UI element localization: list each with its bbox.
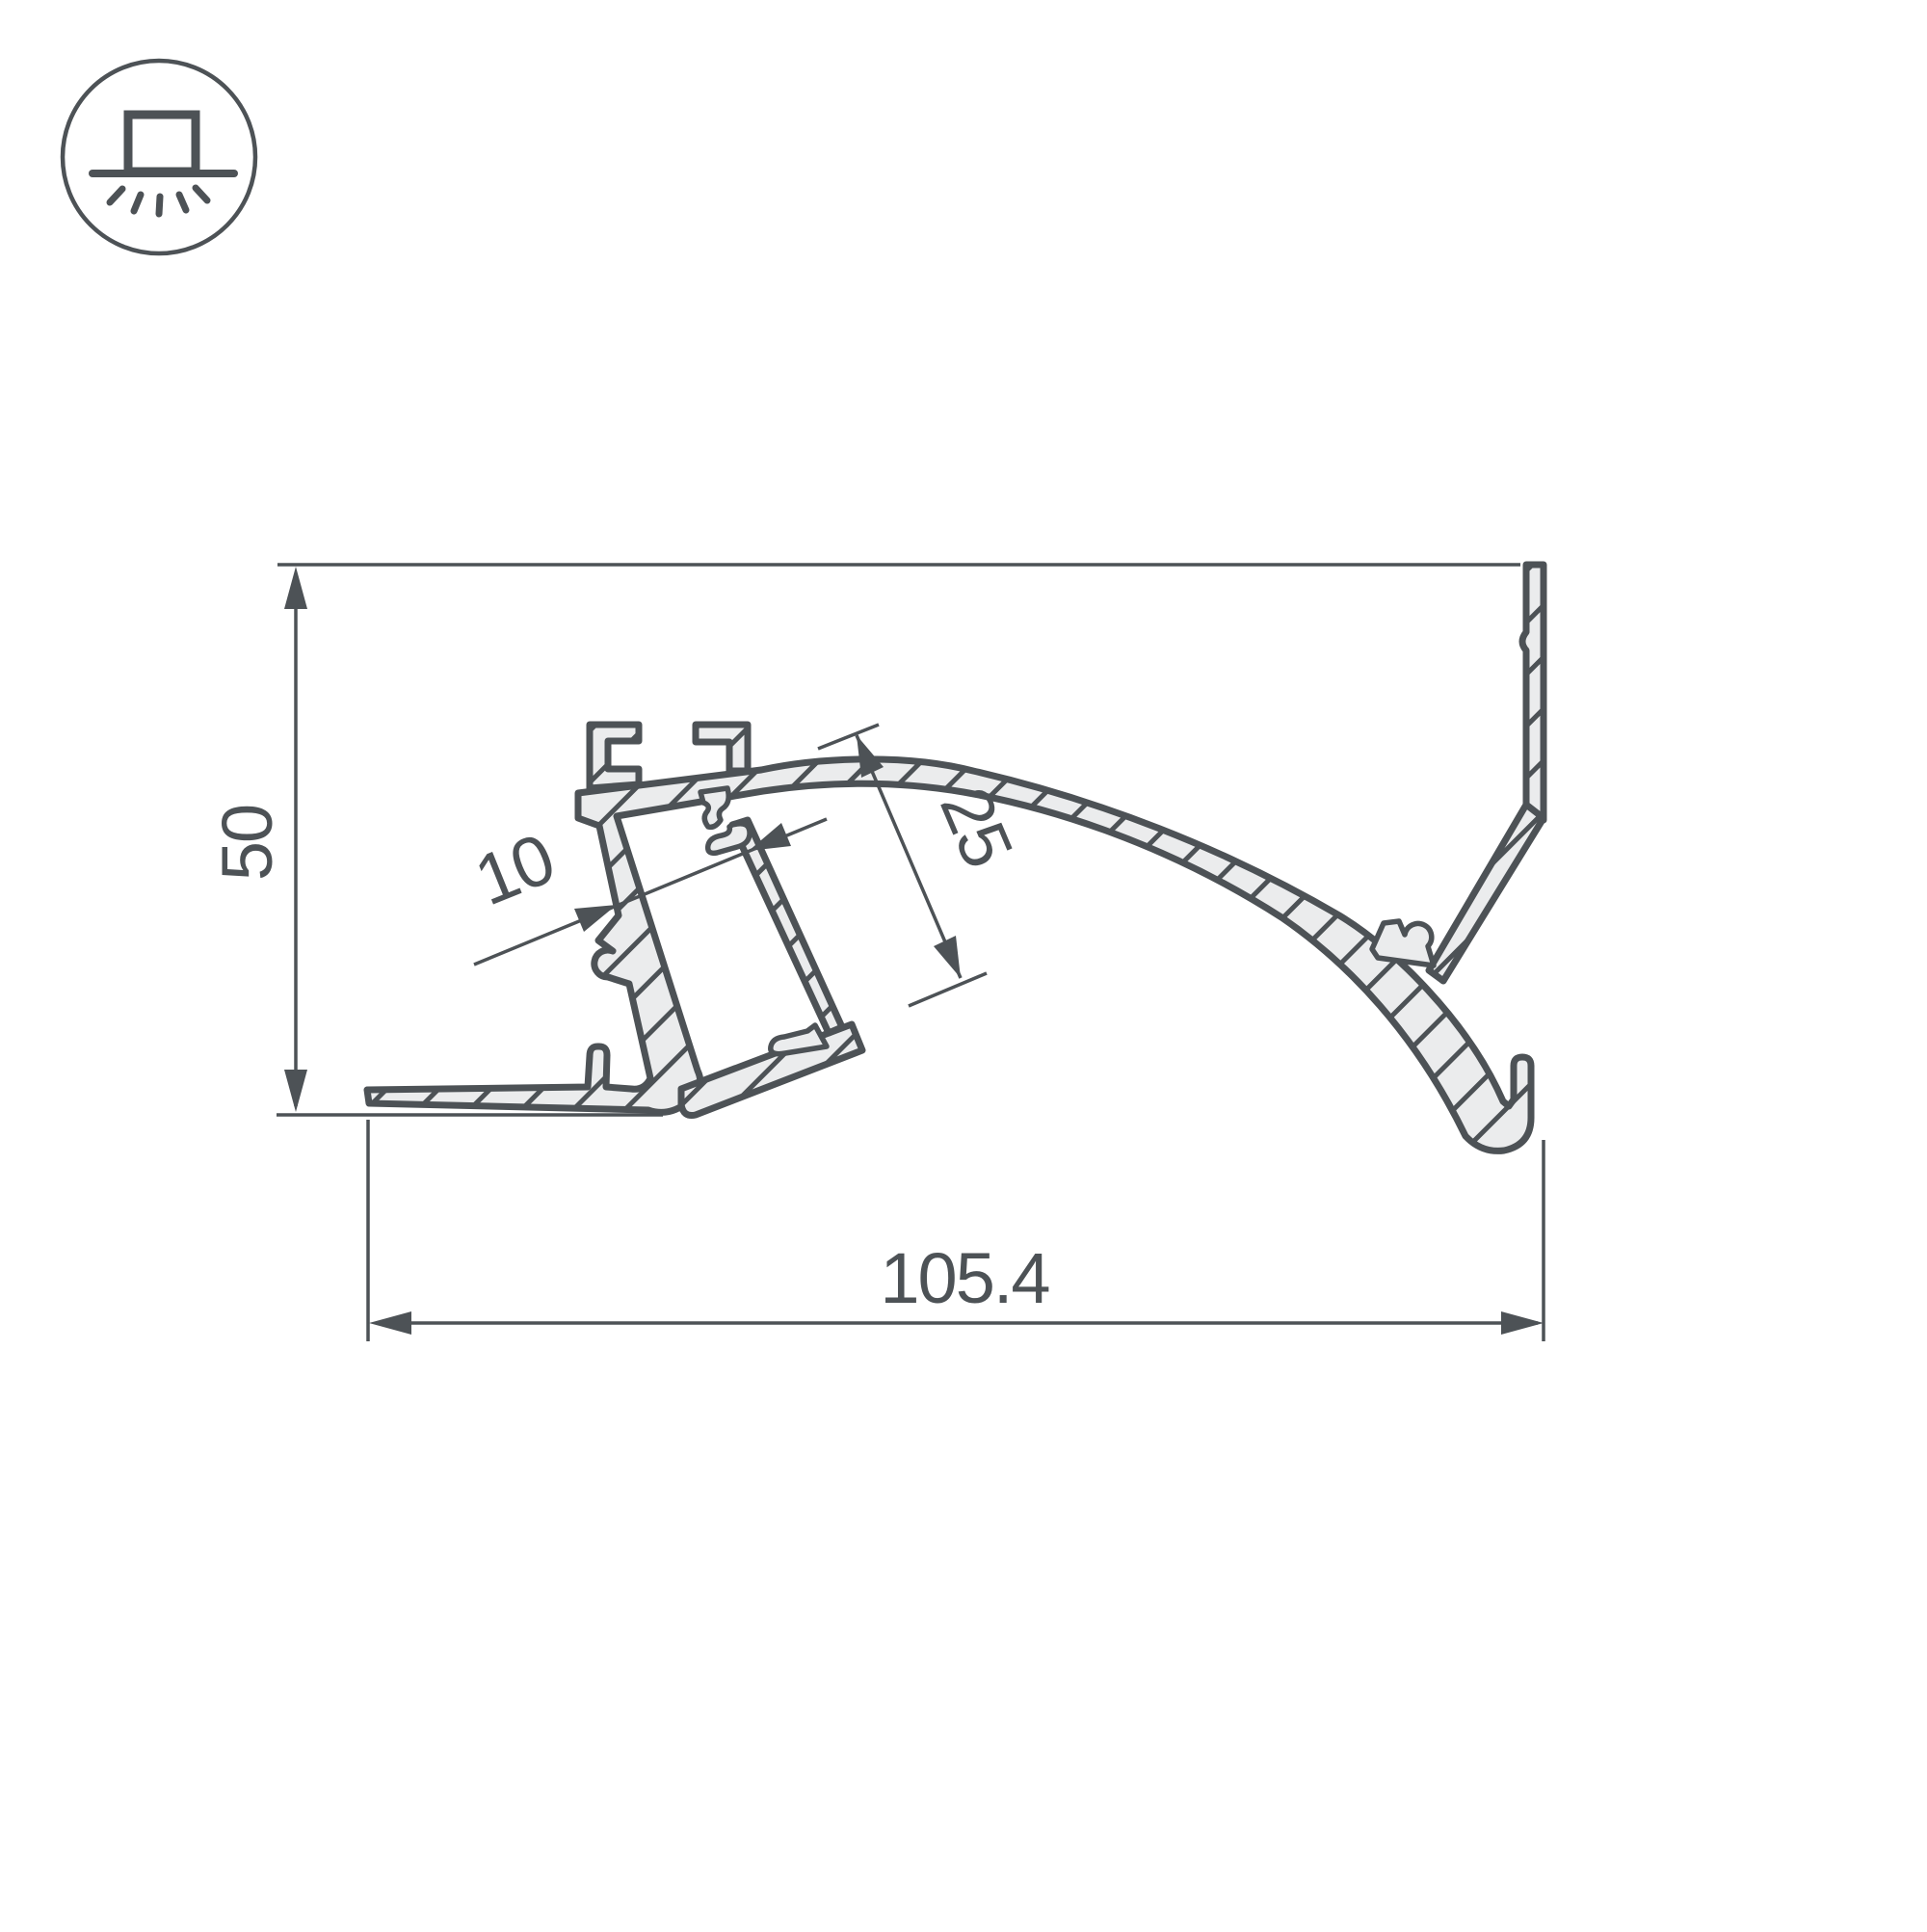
channel-bottom-hook: [771, 1025, 827, 1054]
arrow-left: [369, 1311, 411, 1335]
drawing-canvas: 50 105.4 25 10: [0, 0, 1927, 1927]
dim-label-height: 50: [207, 806, 287, 881]
extension-line-upper: [818, 725, 879, 749]
icon-light-rays: [110, 188, 207, 214]
channel-bottom-wall: [681, 1024, 862, 1116]
mouth-snap-tooth: [700, 788, 728, 827]
technical-drawing: 50 105.4 25 10: [0, 0, 1927, 1927]
dim-label-overall-width: 105.4: [880, 1238, 1048, 1318]
mount-slot-left-clip: [590, 725, 639, 788]
visor-snap-detent: [1372, 921, 1434, 966]
ceiling-strip: [1522, 565, 1544, 820]
support-strut: [1429, 805, 1544, 981]
dimension-height: 50: [207, 565, 1520, 1115]
mount-type-icon: [63, 61, 255, 253]
icon-circle: [63, 61, 255, 253]
dimension-overall-width: 105.4: [368, 1120, 1544, 1341]
arrow-up: [284, 567, 307, 609]
arrow-lower: [934, 936, 961, 978]
arrow-right: [1501, 1311, 1544, 1335]
arrow-down: [284, 1070, 307, 1112]
mount-slot-right-clip: [696, 725, 748, 771]
icon-fixture-square: [128, 115, 196, 172]
dim-label-channel-width: 10: [464, 818, 565, 920]
extension-line-lower: [909, 973, 987, 1006]
